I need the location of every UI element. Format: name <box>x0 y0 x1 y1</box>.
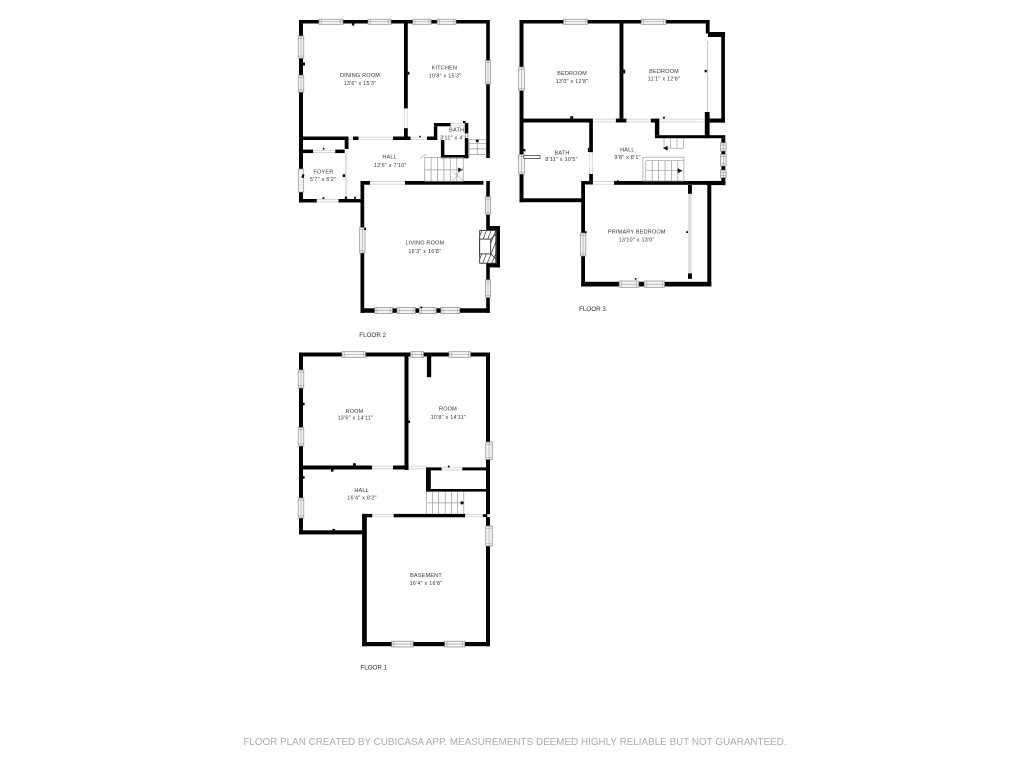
svg-text:BEDROOM: BEDROOM <box>557 71 587 77</box>
svg-text:5'7" x 6'2": 5'7" x 6'2" <box>310 177 336 183</box>
svg-text:16'3" x 16'8": 16'3" x 16'8" <box>408 249 441 255</box>
svg-text:DINING ROOM: DINING ROOM <box>340 73 380 79</box>
svg-text:PRIMARY BEDROOM: PRIMARY BEDROOM <box>608 230 666 236</box>
svg-text:FOYER: FOYER <box>313 169 333 175</box>
svg-text:FLOOR PLAN CREATED BY CUBICASA: FLOOR PLAN CREATED BY CUBICASA APP. MEAS… <box>243 737 786 748</box>
svg-text:BASEMENT: BASEMENT <box>410 573 442 579</box>
svg-text:16'4" x 16'8": 16'4" x 16'8" <box>410 581 443 587</box>
svg-text:16'4" x 8'2": 16'4" x 8'2" <box>347 496 377 502</box>
svg-text:13'6" x 15'3": 13'6" x 15'3" <box>344 81 377 87</box>
svg-text:HALL: HALL <box>620 148 635 154</box>
svg-text:13'10" x 13'0": 13'10" x 13'0" <box>619 237 655 243</box>
svg-text:13'6" x 14'11": 13'6" x 14'11" <box>338 416 374 422</box>
svg-text:10'8" x 14'11": 10'8" x 14'11" <box>431 415 467 421</box>
svg-text:HALL: HALL <box>354 488 369 494</box>
svg-text:9'8" x 8'1": 9'8" x 8'1" <box>614 155 640 161</box>
svg-text:BEDROOM: BEDROOM <box>649 69 679 75</box>
svg-text:FLOOR 2: FLOOR 2 <box>359 332 386 339</box>
svg-text:BATH: BATH <box>554 150 569 156</box>
svg-text:ROOM: ROOM <box>439 407 457 413</box>
svg-text:12'6" x 7'10": 12'6" x 7'10" <box>374 163 407 169</box>
svg-text:11'1" x 12'8": 11'1" x 12'8" <box>648 77 680 83</box>
svg-text:ROOM: ROOM <box>346 409 364 415</box>
svg-text:HALL: HALL <box>382 154 397 160</box>
svg-text:FLOOR 3: FLOOR 3 <box>579 306 606 313</box>
svg-text:BATH: BATH <box>449 128 464 134</box>
svg-text:3'11" x 4'1": 3'11" x 4'1" <box>440 135 469 141</box>
svg-text:13'0" x 12'8": 13'0" x 12'8" <box>556 79 589 85</box>
svg-text:8'11" x 10'5": 8'11" x 10'5" <box>545 157 577 163</box>
svg-text:KITCHEN: KITCHEN <box>432 65 458 71</box>
svg-text:FLOOR 1: FLOOR 1 <box>360 664 387 671</box>
svg-text:LIVING ROOM: LIVING ROOM <box>405 240 444 246</box>
svg-text:10'8" x 15'3": 10'8" x 15'3" <box>429 73 462 79</box>
